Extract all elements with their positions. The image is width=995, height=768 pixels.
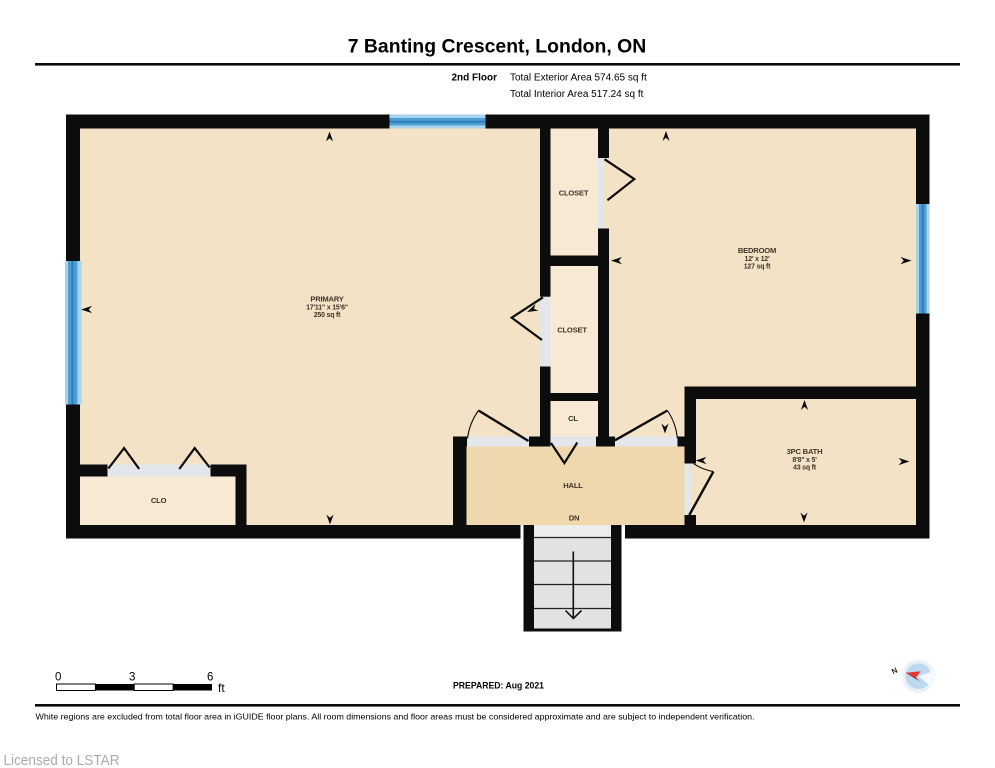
svg-text:DN: DN: [569, 514, 580, 523]
svg-text:0: 0: [55, 672, 61, 684]
svg-text:White regions are excluded fro: White regions are excluded from total fl…: [36, 711, 755, 721]
svg-text:Total Interior Area 517.24 sq: Total Interior Area 517.24 sq ft: [510, 89, 644, 100]
svg-text:CLOSET: CLOSET: [557, 326, 587, 335]
svg-text:2nd Floor: 2nd Floor: [451, 72, 497, 83]
svg-text:7 Banting Crescent, London, ON: 7 Banting Crescent, London, ON: [348, 35, 647, 57]
svg-text:HALL: HALL: [563, 481, 583, 490]
svg-text:127 sq ft: 127 sq ft: [744, 264, 771, 271]
svg-text:CLO: CLO: [151, 496, 167, 505]
svg-text:17'11" x 15'6": 17'11" x 15'6": [306, 304, 348, 311]
svg-text:CLOSET: CLOSET: [559, 189, 589, 198]
svg-text:CL: CL: [568, 414, 578, 423]
svg-text:250 sq ft: 250 sq ft: [314, 312, 341, 319]
svg-text:BEDROOM: BEDROOM: [738, 246, 776, 255]
svg-text:8'8" x 5': 8'8" x 5': [792, 457, 817, 464]
svg-text:ft: ft: [218, 681, 225, 695]
svg-text:Licensed to LSTAR: Licensed to LSTAR: [4, 752, 120, 768]
svg-text:3PC BATH: 3PC BATH: [787, 447, 823, 456]
svg-text:Total Exterior Area 574.65 sq: Total Exterior Area 574.65 sq ft: [510, 72, 647, 83]
svg-text:43 sq ft: 43 sq ft: [793, 465, 817, 472]
svg-text:3: 3: [129, 672, 135, 684]
svg-text:6: 6: [207, 672, 213, 684]
svg-text:PRIMARY: PRIMARY: [310, 295, 343, 304]
svg-text:12' x 12': 12' x 12': [745, 256, 770, 263]
svg-text:PREPARED: Aug 2021: PREPARED: Aug 2021: [453, 681, 544, 691]
